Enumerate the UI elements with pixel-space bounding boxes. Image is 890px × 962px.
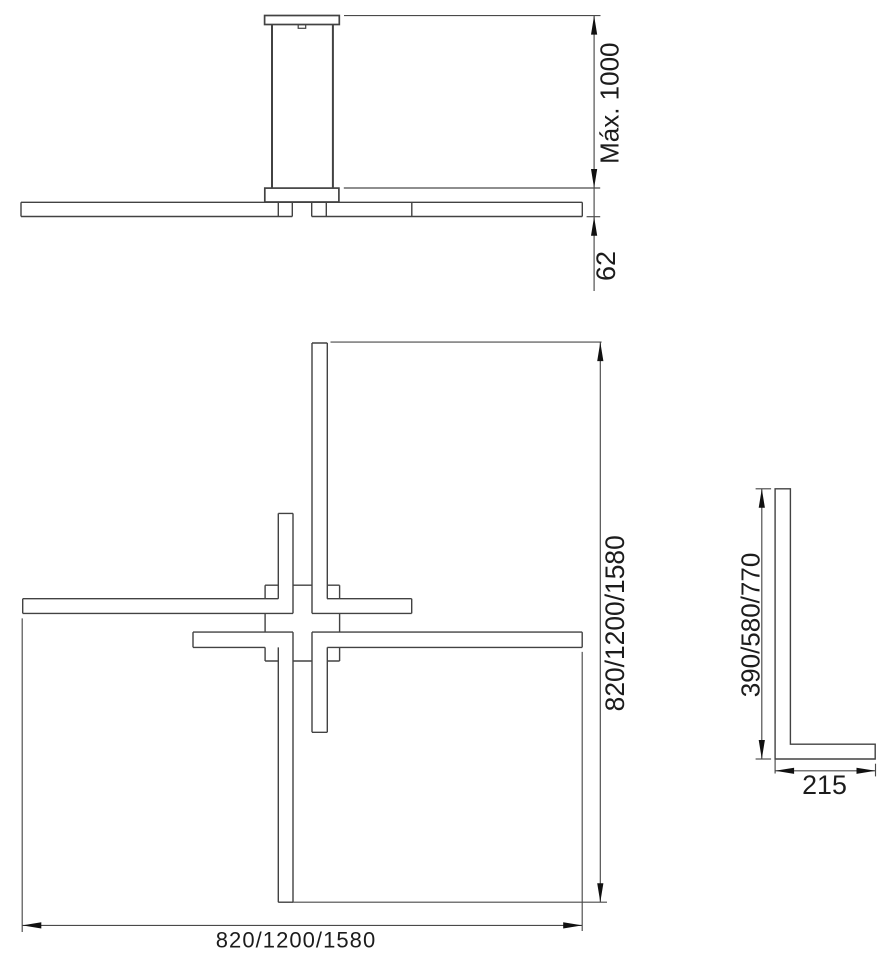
svg-text:Máx. 1000: Máx. 1000 (594, 42, 624, 163)
svg-text:215: 215 (802, 770, 847, 800)
svg-text:820/1200/1580: 820/1200/1580 (216, 928, 376, 953)
svg-text:820/1200/1580: 820/1200/1580 (600, 535, 630, 711)
svg-text:390/580/770: 390/580/770 (735, 553, 765, 698)
svg-text:62: 62 (591, 251, 621, 281)
